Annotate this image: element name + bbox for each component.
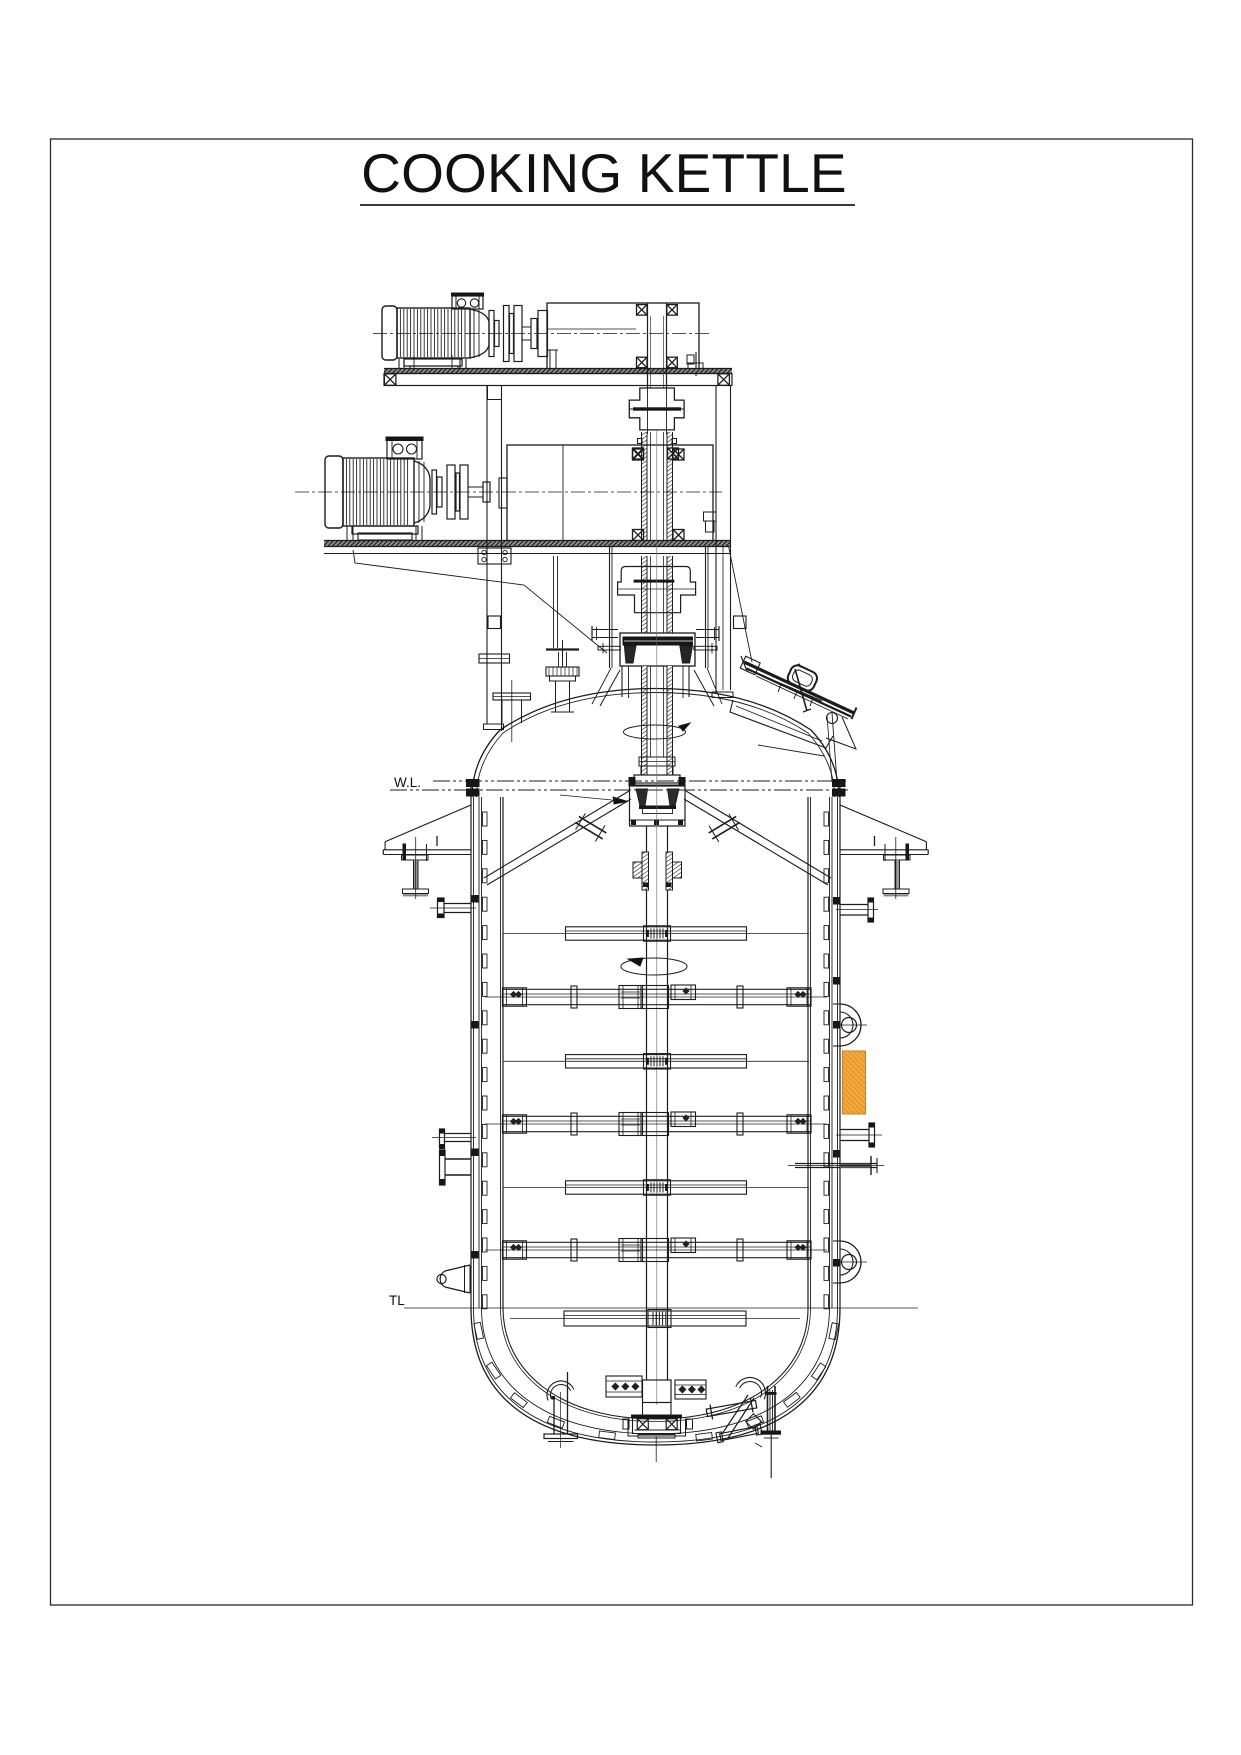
svg-text:COOKING KETTLE: COOKING KETTLE (361, 142, 847, 204)
svg-text:TL: TL (389, 1293, 405, 1308)
svg-text:W.L.: W.L. (394, 775, 421, 790)
